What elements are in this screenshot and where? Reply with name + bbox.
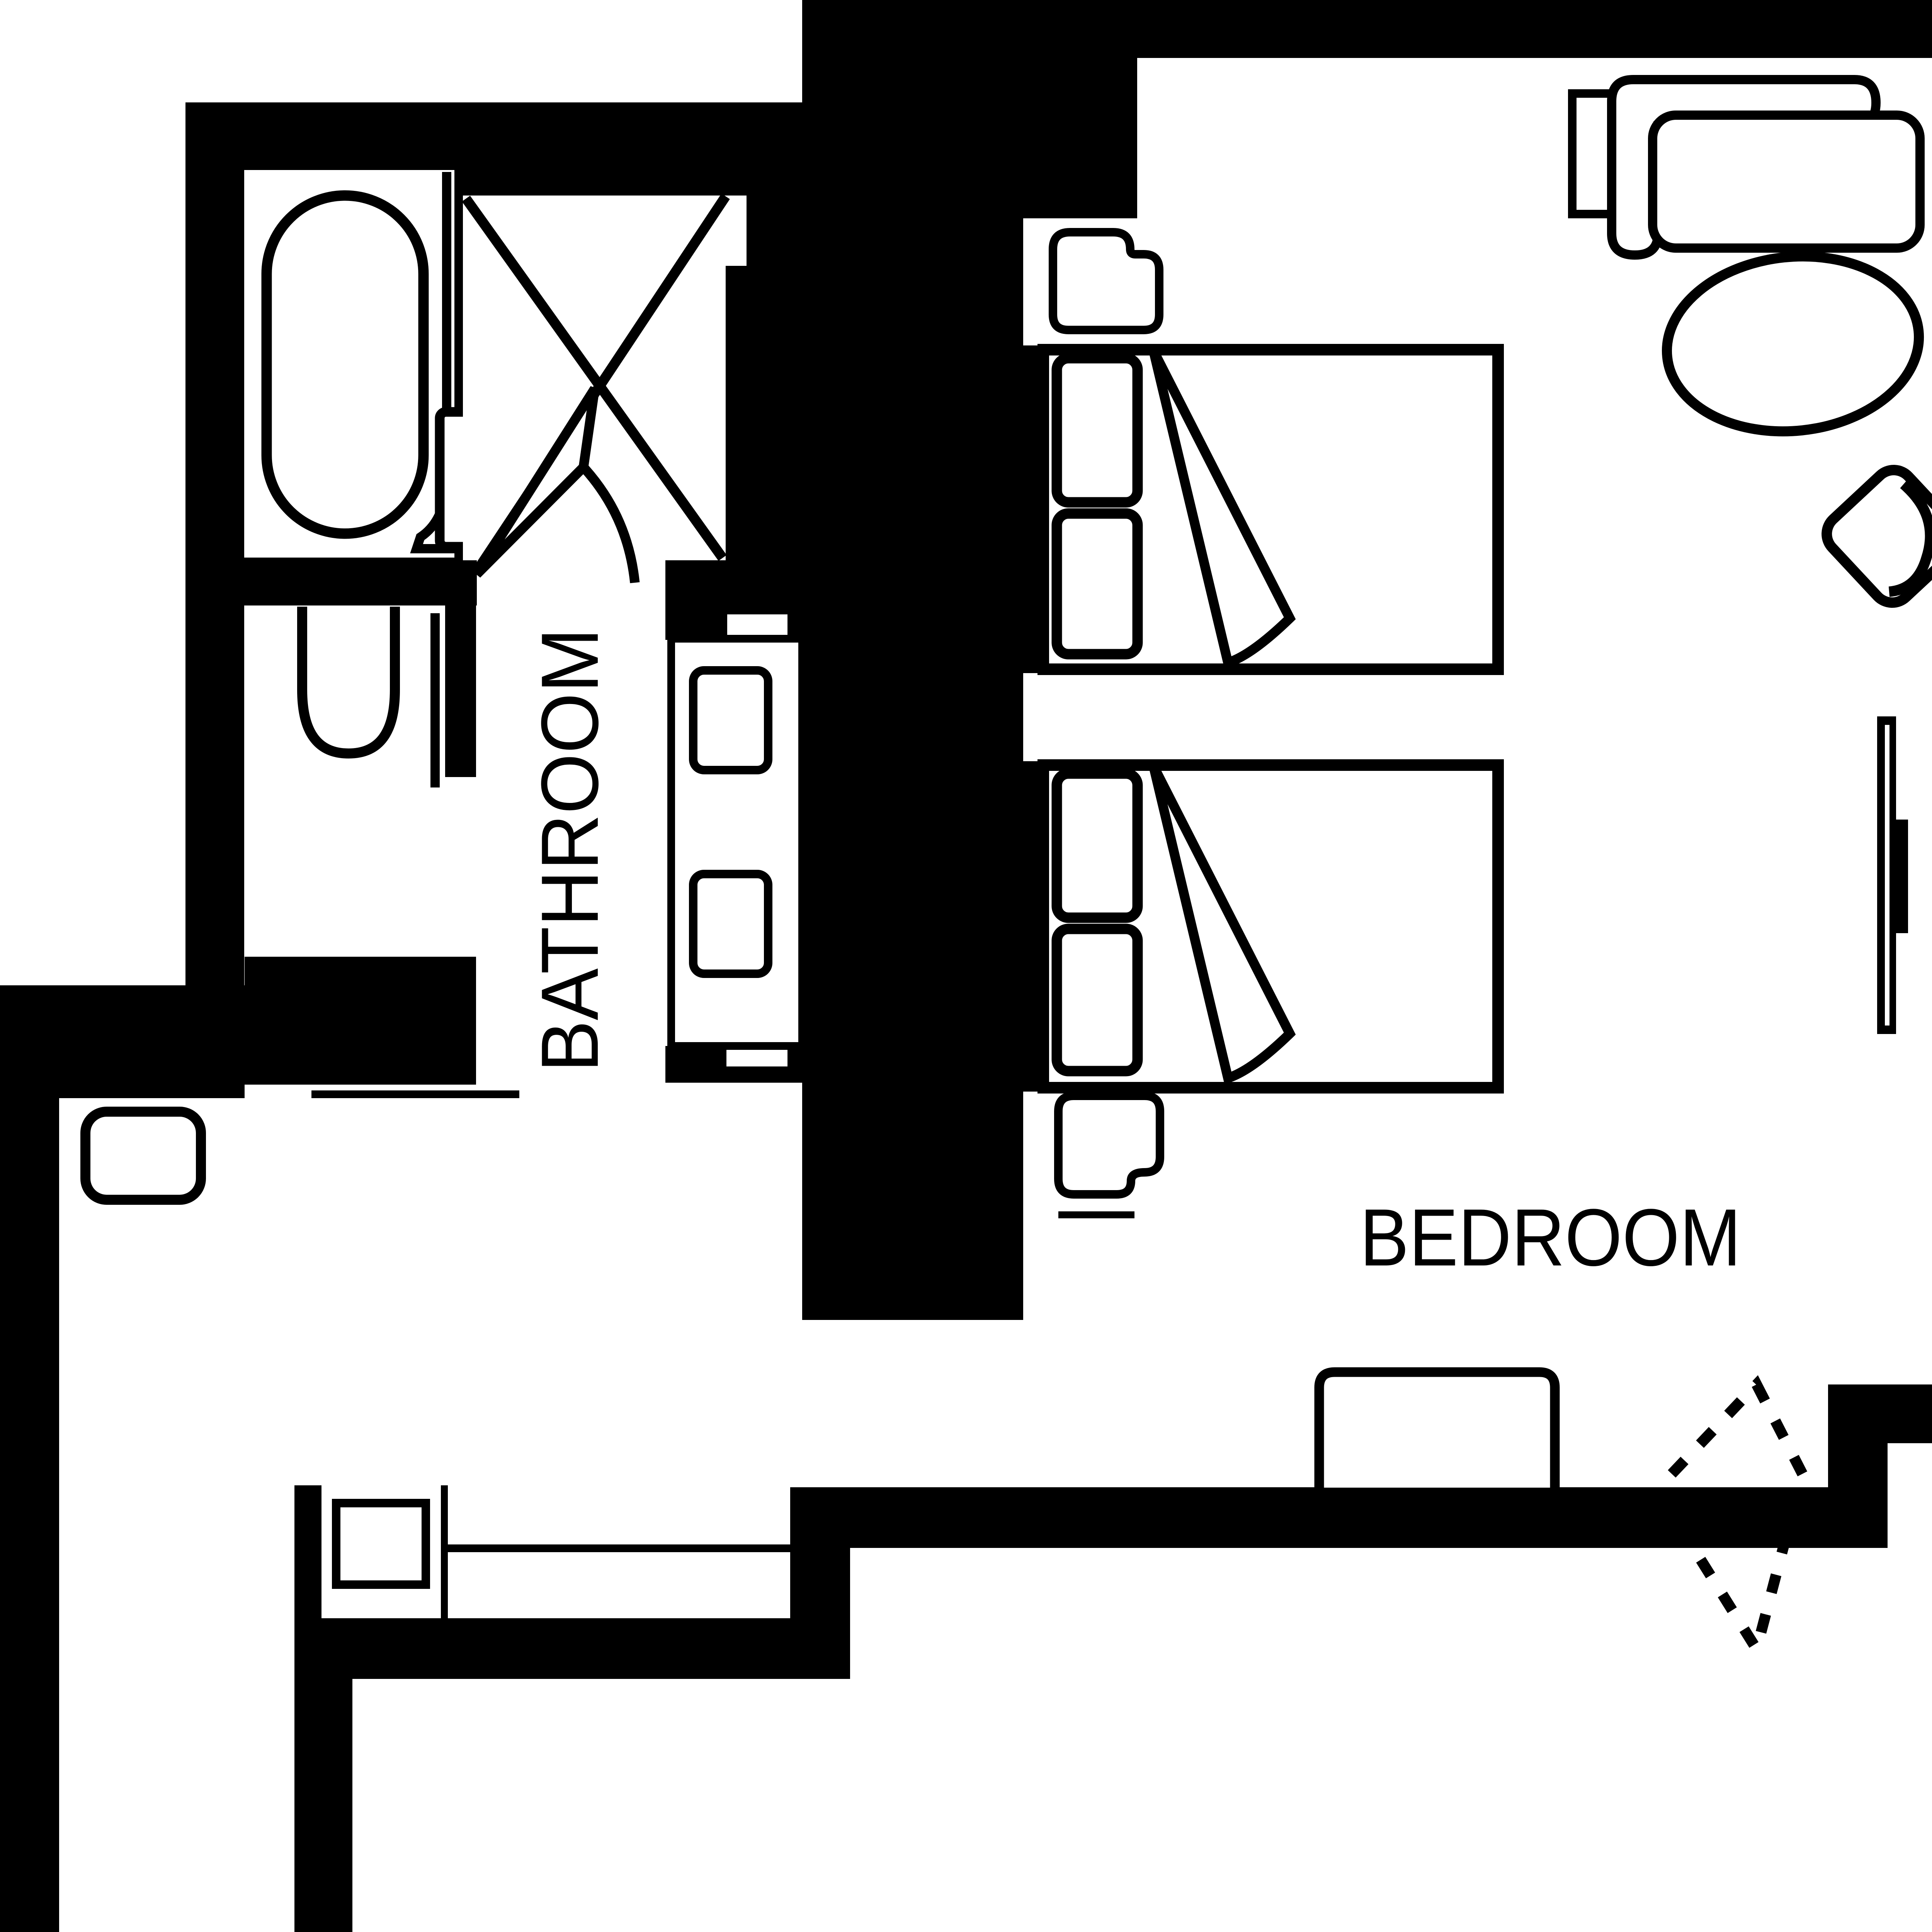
- svg-text:BATHROOM: BATHROOM: [524, 628, 615, 1072]
- svg-text:BEDROOM: BEDROOM: [1360, 1192, 1741, 1283]
